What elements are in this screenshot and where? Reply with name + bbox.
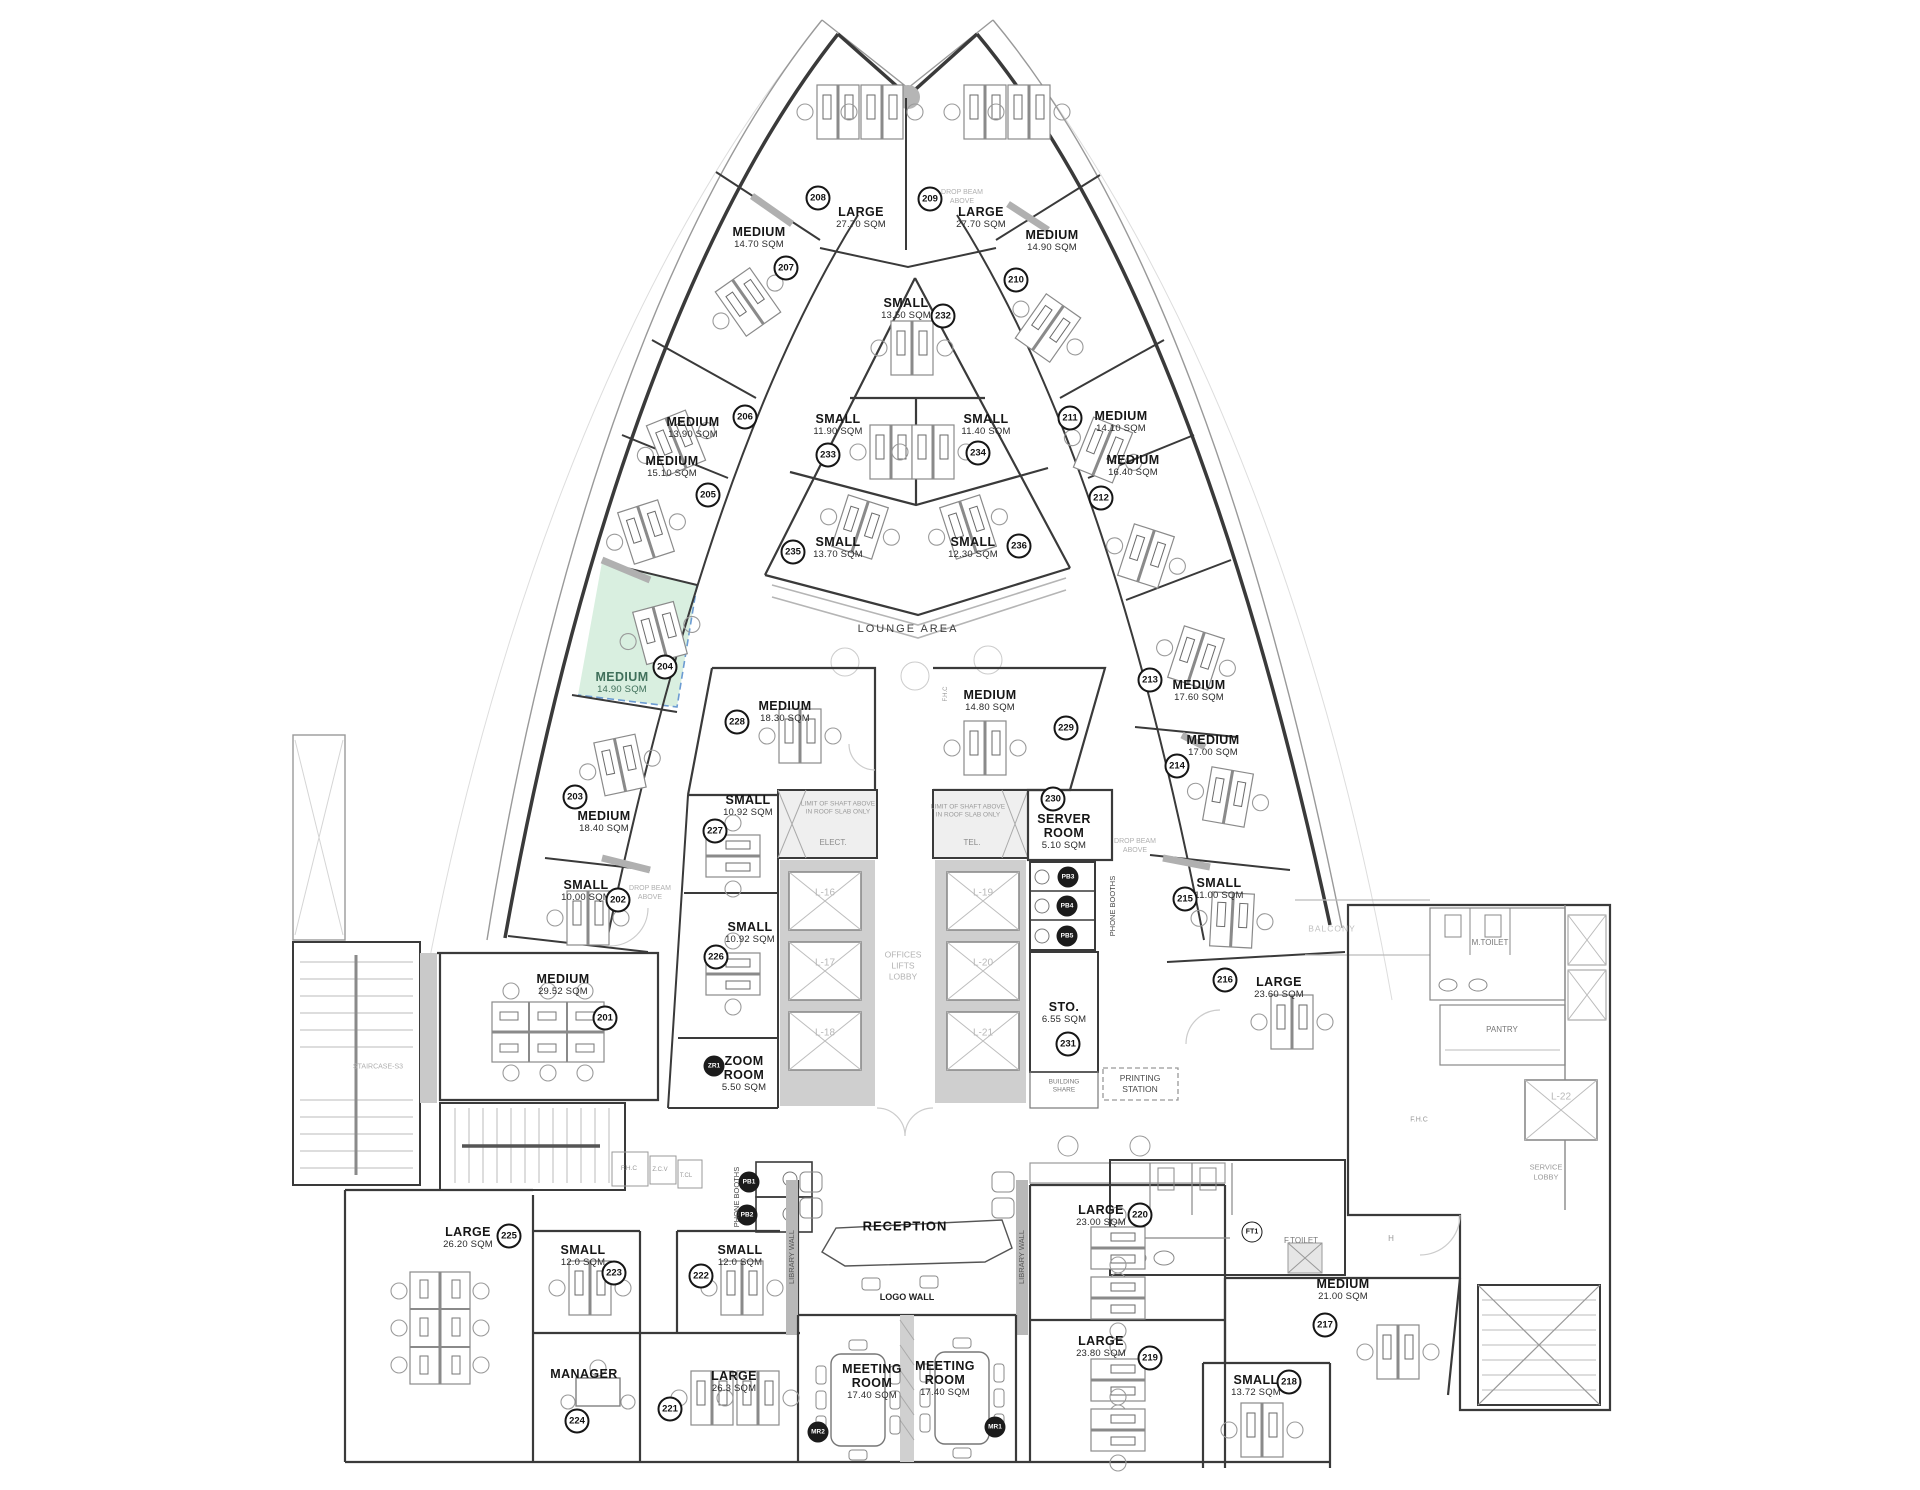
room-number: 231 [1056, 1032, 1081, 1057]
lounge-bench [772, 578, 1066, 638]
room-number: 207 [774, 256, 799, 281]
room-number: 230 [1041, 787, 1066, 812]
room-number: 228 [725, 710, 750, 735]
room-number: 225 [497, 1224, 522, 1249]
room-number: 215 [1173, 887, 1198, 912]
room-number: 220 [1128, 1203, 1153, 1228]
wall-poche [420, 953, 437, 1103]
room-number: 233 [816, 443, 841, 468]
room-number: 223 [602, 1261, 627, 1286]
m-toilet [1430, 908, 1565, 1000]
elect-shaft [778, 790, 877, 858]
lounge-table [974, 646, 1002, 674]
room-number: MR1 [985, 1417, 1006, 1438]
tel-shaft [933, 790, 1028, 858]
room-number: 210 [1004, 268, 1029, 293]
room-number: 217 [1313, 1313, 1338, 1338]
room-number: 208 [806, 186, 831, 211]
room-number: 216 [1213, 968, 1238, 993]
floor-plan: LARGE27.70 SQM208LARGE27.70 SQM209MEDIUM… [0, 0, 1920, 1490]
room-number: 222 [689, 1264, 714, 1289]
badge-pb4: PB4 [1057, 896, 1078, 917]
room-number: 211 [1058, 406, 1083, 431]
printing-station [1103, 1068, 1178, 1100]
lounge-table [901, 662, 929, 690]
room-number: 214 [1165, 754, 1190, 779]
room-number: 234 [966, 441, 991, 466]
room-number: 236 [1007, 534, 1032, 559]
lower-right-walls [1030, 1185, 1330, 1468]
room-number: MR2 [808, 1422, 829, 1443]
room-number: 201 [593, 1006, 618, 1031]
badge-pb2: PB2 [737, 1205, 758, 1226]
room-number: 205 [696, 483, 721, 508]
room-number: 204 [653, 655, 678, 680]
floorplan-drawing [0, 0, 1920, 1490]
room-number: 202 [606, 888, 631, 913]
room-number: 226 [704, 945, 729, 970]
room-217-walls [1225, 1278, 1460, 1395]
room-number: 221 [658, 1397, 683, 1422]
library-wall [786, 1180, 798, 1335]
core-room-walls [688, 668, 1105, 795]
badge-pb5: PB5 [1057, 926, 1078, 947]
library-wall [1016, 1180, 1028, 1335]
room-number: 229 [1054, 716, 1079, 741]
room-number: 224 [565, 1409, 590, 1434]
badge-ft1: FT1 [1242, 1222, 1263, 1243]
room-number: 218 [1277, 1370, 1302, 1395]
room-number: 209 [918, 187, 943, 212]
building-share-room [1030, 1072, 1098, 1108]
badge-pb1: PB1 [739, 1172, 760, 1193]
room-number: ZR1 [704, 1056, 725, 1077]
pantry [1440, 1005, 1565, 1065]
room-number: 203 [563, 785, 588, 810]
room-number: 219 [1138, 1346, 1163, 1371]
door-swings [610, 744, 1460, 1255]
badge-pb3: PB3 [1058, 867, 1079, 888]
room-number: 206 [733, 405, 758, 430]
room-number: 235 [781, 540, 806, 565]
reception-desk [822, 1220, 1012, 1266]
room-number: 232 [931, 304, 956, 329]
room-number: 213 [1138, 668, 1163, 693]
room-number: 227 [703, 819, 728, 844]
balcony [1295, 900, 1430, 955]
room-number: 212 [1089, 486, 1114, 511]
lounge-table [831, 648, 859, 676]
